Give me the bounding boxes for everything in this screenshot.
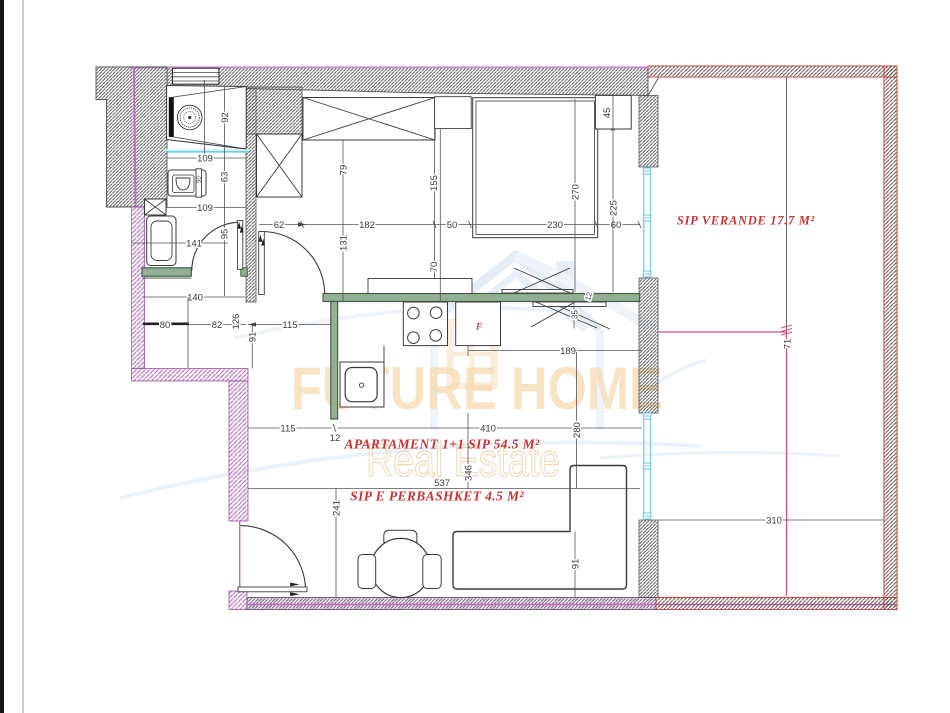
svg-text:70: 70	[429, 262, 440, 273]
svg-text:280: 280	[572, 422, 583, 438]
svg-text:182: 182	[359, 220, 375, 231]
svg-text:35: 35	[571, 310, 580, 319]
svg-text:80: 80	[160, 320, 171, 331]
svg-text:109: 109	[197, 154, 213, 165]
svg-text:90: 90	[197, 176, 203, 183]
svg-text:346: 346	[464, 465, 475, 481]
svg-text:270: 270	[571, 184, 582, 200]
svg-text:115: 115	[280, 424, 295, 435]
svg-text:131: 131	[339, 235, 350, 251]
svg-text:63: 63	[220, 172, 231, 183]
svg-text:310: 310	[766, 516, 782, 527]
svg-text:50: 50	[447, 220, 458, 231]
svg-text:71: 71	[783, 339, 794, 350]
svg-text:109: 109	[197, 203, 213, 214]
svg-text:91: 91	[248, 332, 259, 343]
svg-text:APARTAMENT 1+1 SIP 54.5 M²: APARTAMENT 1+1 SIP 54.5 M²	[343, 437, 540, 452]
svg-text:225: 225	[609, 200, 620, 216]
svg-text:F: F	[475, 322, 482, 332]
svg-text:79: 79	[339, 165, 350, 176]
svg-text:60: 60	[611, 220, 622, 231]
svg-text:92: 92	[220, 112, 231, 123]
svg-text:45: 45	[602, 108, 613, 119]
svg-text:155: 155	[429, 175, 440, 191]
svg-text:62: 62	[274, 220, 285, 231]
svg-text:141: 141	[186, 239, 202, 250]
svg-text:241: 241	[332, 500, 343, 516]
svg-text:12: 12	[330, 433, 341, 444]
svg-text:SIP E PERBASHKET 4.5 M²: SIP E PERBASHKET 4.5 M²	[350, 489, 524, 504]
svg-text:140: 140	[187, 293, 203, 304]
svg-text:537: 537	[434, 478, 450, 489]
svg-text:SIP VERANDE 17.7 M²: SIP VERANDE 17.7 M²	[677, 214, 815, 228]
svg-text:115: 115	[282, 320, 297, 331]
svg-text:95: 95	[220, 229, 231, 240]
svg-text:126: 126	[231, 314, 242, 330]
svg-text:410: 410	[480, 424, 496, 435]
svg-text:82: 82	[212, 320, 223, 331]
svg-text:230: 230	[547, 220, 563, 231]
svg-text:189: 189	[560, 346, 576, 357]
svg-text:91: 91	[571, 559, 582, 570]
